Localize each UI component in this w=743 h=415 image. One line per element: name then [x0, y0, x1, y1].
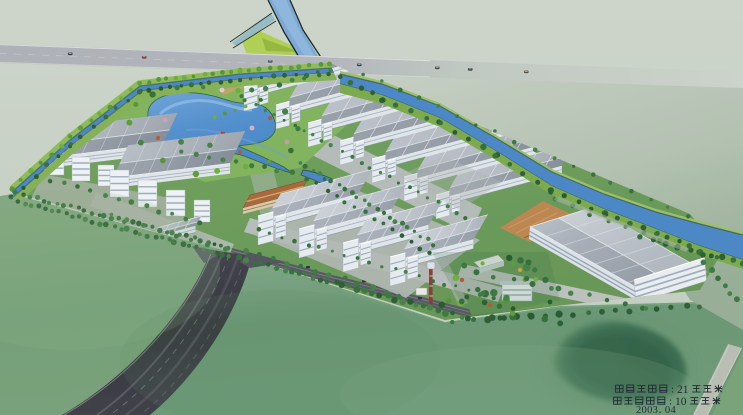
svg-text:2003․ 04: 2003․ 04 [636, 405, 676, 415]
svg-text:21: 21 [677, 384, 689, 396]
svg-text:10: 10 [675, 396, 687, 408]
svg-text::: : [671, 384, 674, 396]
